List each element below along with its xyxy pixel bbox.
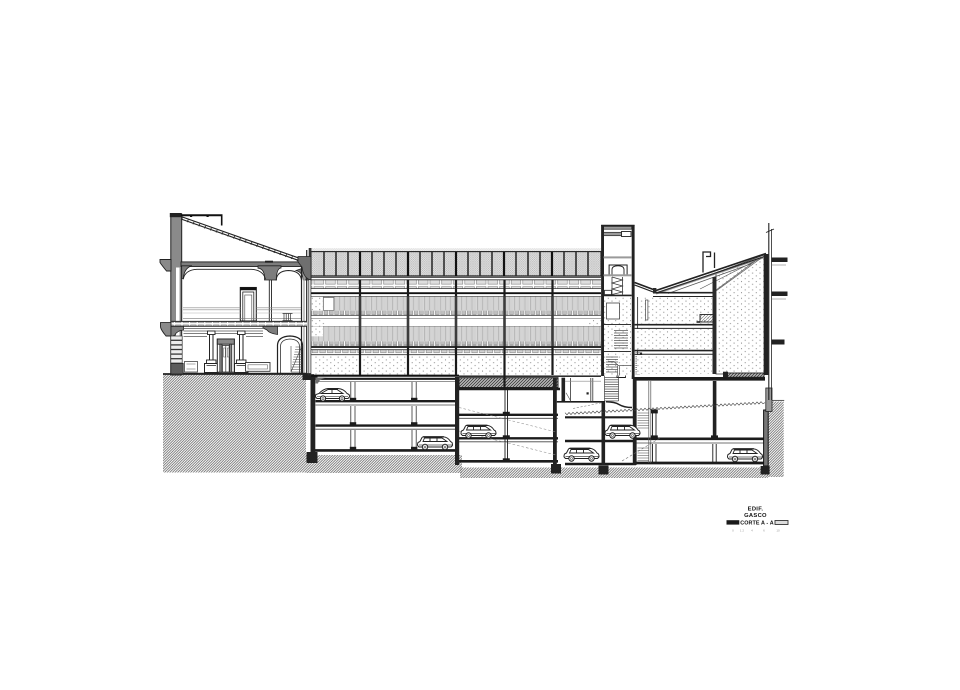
svg-text:1 2: 1 2 [740, 529, 745, 533]
svg-text:10: 10 [776, 529, 780, 533]
svg-text:GASCO: GASCO [744, 513, 767, 519]
svg-text:CORTE A - A: CORTE A - A [740, 520, 773, 526]
svg-text:EDIF.: EDIF. [748, 507, 764, 513]
